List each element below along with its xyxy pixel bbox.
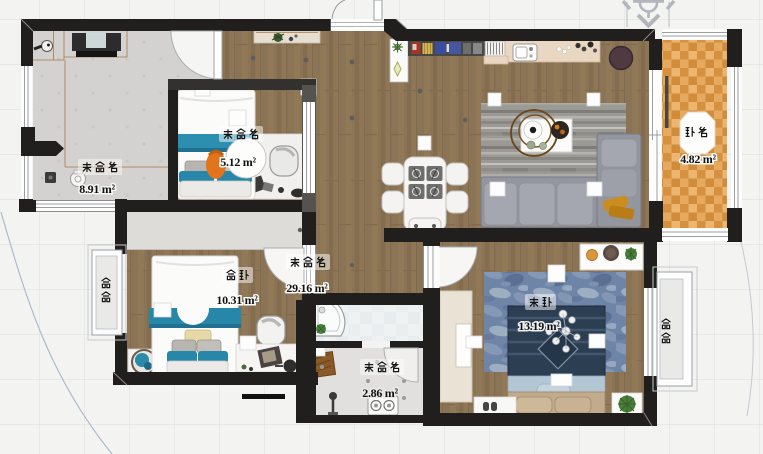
svg-text:2.86 m²: 2.86 m² [362,386,398,400]
svg-text:13.19 m²: 13.19 m² [518,319,560,333]
svg-text:4.82 m²: 4.82 m² [680,152,716,166]
svg-text:29.16 m²: 29.16 m² [286,281,328,295]
svg-text:8.91 m²: 8.91 m² [79,182,115,196]
svg-text:5.12 m²: 5.12 m² [220,155,256,169]
svg-text:10.31 m²: 10.31 m² [216,293,258,307]
